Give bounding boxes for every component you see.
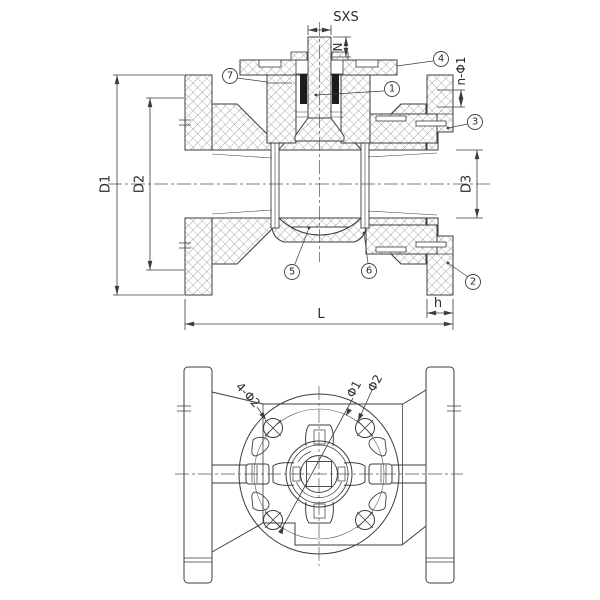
drawing-page: D1 D2 D3 SXS N n-Φ1 [0, 0, 600, 600]
balloon-6-number: 6 [366, 266, 372, 277]
leader-dot [363, 232, 366, 235]
upper-joint-ring-b [416, 121, 446, 126]
gland-flange-left [291, 52, 307, 60]
l-label: L [317, 307, 325, 322]
plate-bolt-hole-left [259, 60, 281, 67]
n-phi1-label: n-Φ1 [454, 56, 468, 85]
lower-joint-ring-b [416, 242, 446, 247]
n-label: N [331, 43, 345, 52]
bonnet-right-wall-section [341, 75, 370, 143]
stem-packing-right [332, 74, 339, 104]
plate-bolt-hole-right [356, 60, 378, 67]
leader-dot [315, 94, 318, 97]
gland-bushing-right [331, 60, 343, 74]
lower-joint-ring-a [376, 247, 406, 252]
valve-technical-drawing: D1 D2 D3 SXS N n-Φ1 [0, 0, 600, 600]
leader-dot [447, 127, 450, 130]
balloon-2-number: 2 [470, 277, 476, 288]
balloon-7-number: 7 [227, 71, 233, 82]
d3-label: D3 [460, 175, 475, 193]
gland-bushing-left [296, 60, 308, 74]
left-flange-lower-section [185, 218, 212, 295]
sxs-label: SXS [333, 10, 358, 25]
leader-dot [308, 227, 311, 230]
stem-packing-left [300, 74, 307, 104]
balloon-1-number: 1 [389, 84, 395, 95]
leader-dot [447, 262, 450, 265]
h-label: h [434, 296, 442, 311]
upper-joint-ring-a [376, 116, 406, 121]
bonnet-left-wall-section [267, 75, 296, 143]
d2-label: D2 [133, 175, 148, 193]
balloon-3-number: 3 [472, 117, 478, 128]
balloon-4-number: 4 [438, 54, 444, 65]
left-flange-upper-section [185, 75, 212, 150]
balloon-5-number: 5 [289, 267, 295, 278]
d1-label: D1 [99, 175, 114, 193]
